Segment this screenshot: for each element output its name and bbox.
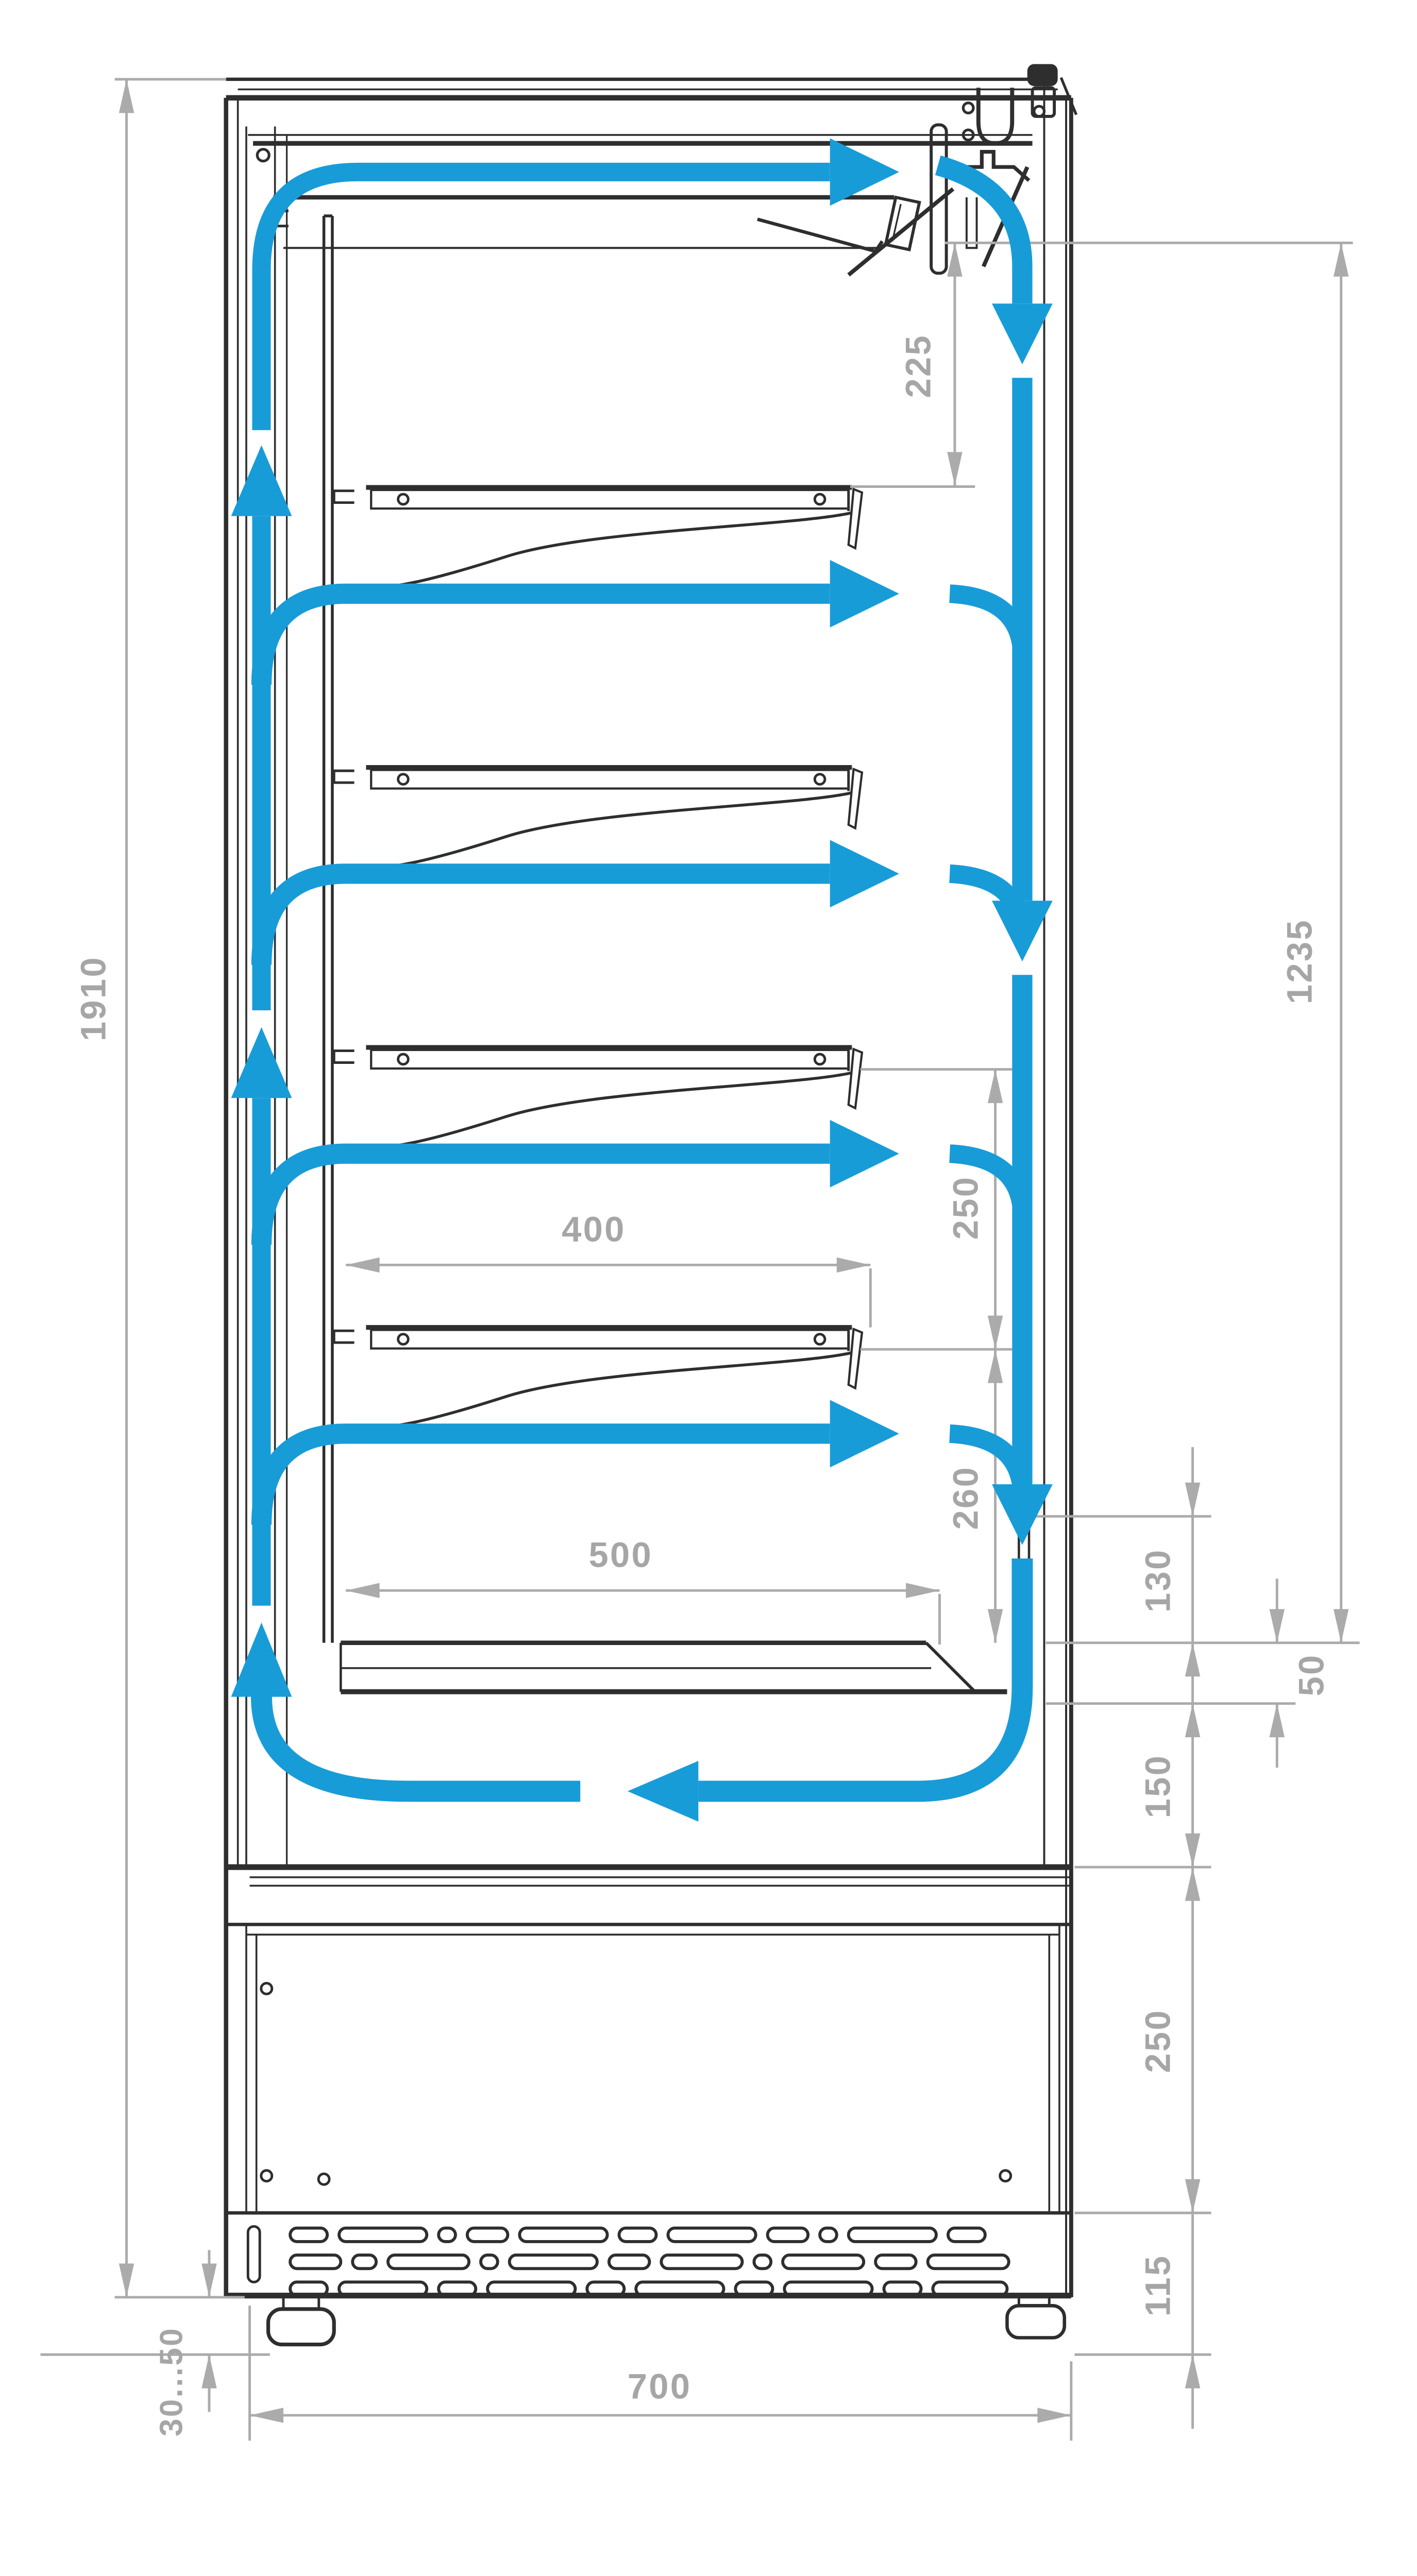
dim-deck-to-return-grille: 50 (1270, 1579, 1331, 1768)
dim-shelf-depth: 400 (346, 1210, 870, 1273)
price-rail (967, 197, 977, 248)
dim-last-shelf-to-deck: 260 (946, 1349, 1003, 1643)
display-cabinet-section-drawing: 1910 225 1235 400 250 (0, 0, 1417, 2576)
bottom-separator (226, 1867, 1071, 1886)
vent-grille-slots (290, 2228, 1009, 2296)
shelf-flow-arrow-2 (261, 840, 899, 964)
dim-front-opening-height: 1235 (1280, 243, 1349, 1642)
dim-label-top-clearance: 225 (899, 334, 938, 398)
shelf-3 (334, 1046, 862, 1150)
dim-foot-height-range: 30...50 (154, 2250, 217, 2436)
price-tag-strip (849, 769, 862, 828)
dim-label-deck-to-return-grille: 50 (1291, 1653, 1331, 1696)
dim-label-front-barrier-height: 130 (1138, 1548, 1178, 1613)
dim-label-under-deck-height: 150 (1138, 1754, 1178, 1819)
shelf-light-cable (355, 1073, 852, 1150)
price-tag-strip (849, 1049, 862, 1108)
machine-compartment (226, 1924, 1071, 2213)
shelves (334, 486, 862, 1430)
hinge-pin (1027, 64, 1058, 86)
shelf-2 (334, 766, 862, 870)
dim-label-total-depth: 700 (628, 2366, 692, 2406)
adjustable-foot-left (268, 2297, 334, 2345)
front-glass (1044, 78, 1071, 2297)
dim-label-base-shelf-depth: 500 (589, 1535, 653, 1574)
dim-label-total-height: 1910 (74, 956, 113, 1041)
shelf-light-cable (355, 513, 852, 590)
shelf-flow-arrow-4 (261, 1400, 899, 1524)
air-deflector (757, 219, 882, 251)
shelf-rear-bracket (334, 771, 354, 783)
dim-total-depth: 700 (250, 2366, 1071, 2422)
shelf-flow-arrow-1 (261, 560, 899, 685)
vent-grille (226, 2226, 1071, 2295)
shelf-board (371, 1050, 848, 1069)
dim-total-height: 1910 (74, 79, 134, 2297)
technical-drawing-page: 1910 225 1235 400 250 (0, 0, 1417, 2576)
dim-right-chain: 130 150 250 115 (1138, 1447, 1201, 2429)
shelf-4 (334, 1326, 862, 1430)
shelf-rear-bracket (334, 491, 354, 503)
shelf-1 (334, 486, 862, 590)
shelf-board (371, 770, 848, 788)
shelf-rear-bracket (334, 1331, 354, 1343)
dim-label-front-opening-height: 1235 (1280, 919, 1320, 1004)
shelf-board (371, 1330, 848, 1348)
dim-label-vent-panel-height: 115 (1138, 2255, 1178, 2317)
dim-label-shelf-spacing: 250 (946, 1176, 985, 1240)
shelf-rear-bracket (334, 1051, 354, 1063)
dim-label-shelf-depth: 400 (562, 1210, 626, 1249)
dim-top-clearance: 225 (899, 243, 963, 485)
dim-label-machine-compartment-height: 250 (1138, 2009, 1178, 2073)
shelf-board (371, 490, 848, 509)
price-tag-strip (849, 489, 862, 548)
top-cap (226, 78, 1076, 144)
dim-base-shelf-depth: 500 (346, 1535, 939, 1598)
price-tag-strip (849, 1329, 862, 1388)
dim-label-last-shelf-to-deck: 260 (946, 1466, 985, 1530)
dim-label-foot-height-range: 30...50 (154, 2327, 190, 2436)
dim-shelf-spacing: 250 (946, 1070, 1003, 1349)
shelf-light-cable (355, 793, 852, 871)
adjustable-foot-right (1007, 2297, 1064, 2338)
base-deck (341, 1516, 1029, 1691)
shelf-light-cable (355, 1353, 852, 1431)
